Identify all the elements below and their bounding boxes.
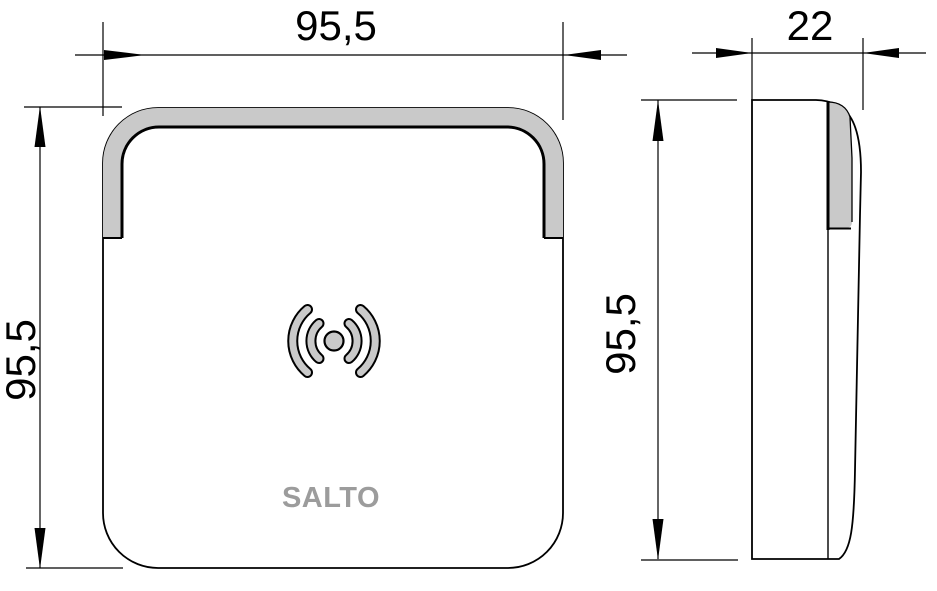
arrowhead-left: [716, 48, 752, 58]
side-view: [752, 100, 861, 559]
dimension-label-front-width: 95,5: [276, 4, 396, 48]
salto-logo: SALTO: [271, 482, 391, 515]
side-top-band: [828, 102, 852, 229]
arrowhead-down: [35, 528, 46, 569]
dimension-side-height: [641, 100, 738, 560]
dimension-label-side-depth: 22: [770, 4, 850, 48]
dimension-label-front-height: 95,5: [0, 300, 43, 420]
dimension-label-side-height: 95,5: [599, 274, 643, 394]
arrowhead-right: [863, 48, 899, 58]
dimensional-drawing: [0, 0, 937, 591]
antenna-center-dot: [325, 332, 344, 351]
arrowhead-down: [653, 519, 664, 560]
arrowhead-up: [35, 106, 46, 147]
drawing-canvas: 95,5 22 95,5 95,5 SALTO: [0, 0, 937, 591]
arrowhead-up: [653, 100, 664, 141]
arrowhead-right: [564, 50, 601, 60]
arrowhead-left: [104, 50, 145, 60]
